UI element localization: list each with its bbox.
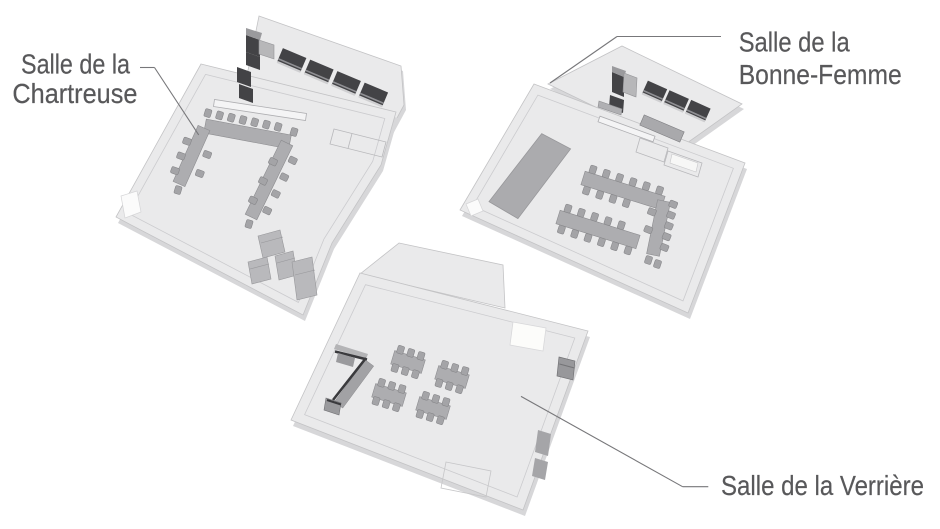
svg-text:Salle de la Verrière: Salle de la Verrière — [721, 470, 924, 501]
svg-text:Bonne-Femme: Bonne-Femme — [739, 59, 902, 90]
svg-text:Chartreuse: Chartreuse — [12, 78, 137, 109]
svg-text:Salle de la: Salle de la — [21, 49, 130, 80]
svg-text:Salle de la: Salle de la — [739, 27, 850, 58]
